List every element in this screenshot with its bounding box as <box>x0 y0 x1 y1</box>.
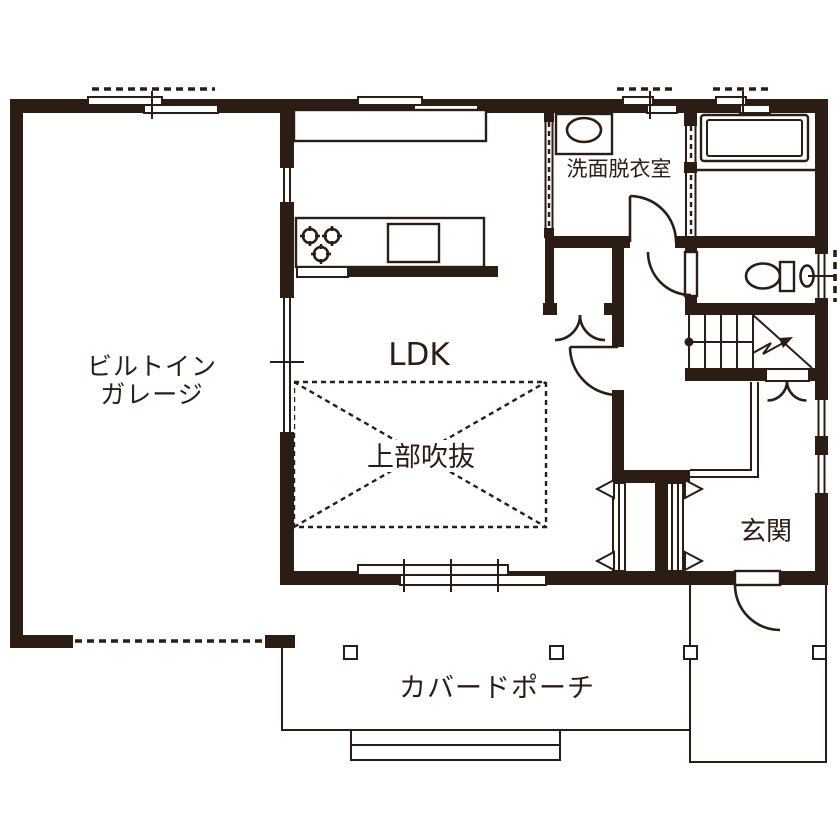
kitchen-counter <box>348 266 498 277</box>
washbasin <box>556 114 612 154</box>
floor-plan-canvas: ビルトイン ガレージ LDK 上部吹抜 洗面脱衣室 玄関 カバードポーチ <box>0 0 840 840</box>
stair-newel-dot <box>685 338 694 347</box>
garage-wall-window-upper <box>280 168 294 202</box>
entrance-window-lower <box>815 455 828 493</box>
entrance-window-upper <box>815 400 828 436</box>
entrance-label: 玄関 <box>740 517 792 547</box>
porch-label: カバードポーチ <box>399 673 595 704</box>
porch-post <box>684 646 697 659</box>
void-label: 上部吹抜 <box>367 442 475 473</box>
kitchen-sink <box>388 224 439 262</box>
porch-post <box>813 646 826 659</box>
washroom-label: 洗面脱衣室 <box>567 157 672 181</box>
ldk-label: LDK <box>388 337 450 373</box>
garage-label-line1: ビルトイン <box>87 352 217 381</box>
kitchen-cabinet <box>294 110 486 141</box>
bathroom <box>697 115 815 170</box>
porch-post <box>344 646 357 659</box>
garage-label-line2: ガレージ <box>100 380 204 409</box>
kitchen-counter-passthrough <box>297 267 348 277</box>
floor-plan: ビルトイン ガレージ LDK 上部吹抜 洗面脱衣室 玄関 カバードポーチ <box>0 0 840 840</box>
porch-post <box>550 646 563 659</box>
